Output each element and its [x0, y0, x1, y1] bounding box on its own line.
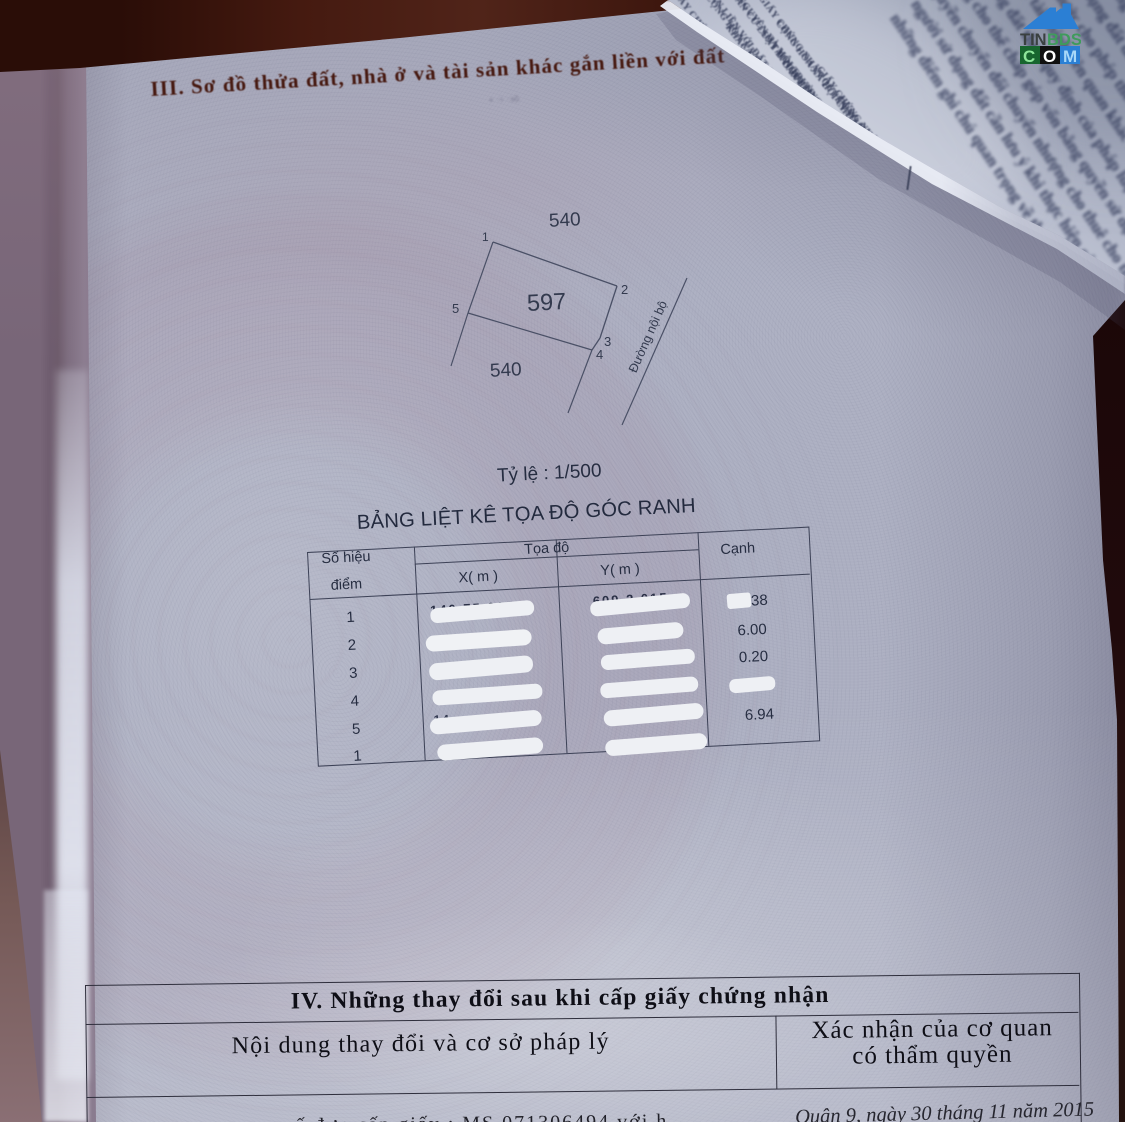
- svg-text:C: C: [1023, 47, 1035, 64]
- svg-text:O: O: [1043, 47, 1056, 64]
- svg-text:M: M: [1063, 47, 1077, 64]
